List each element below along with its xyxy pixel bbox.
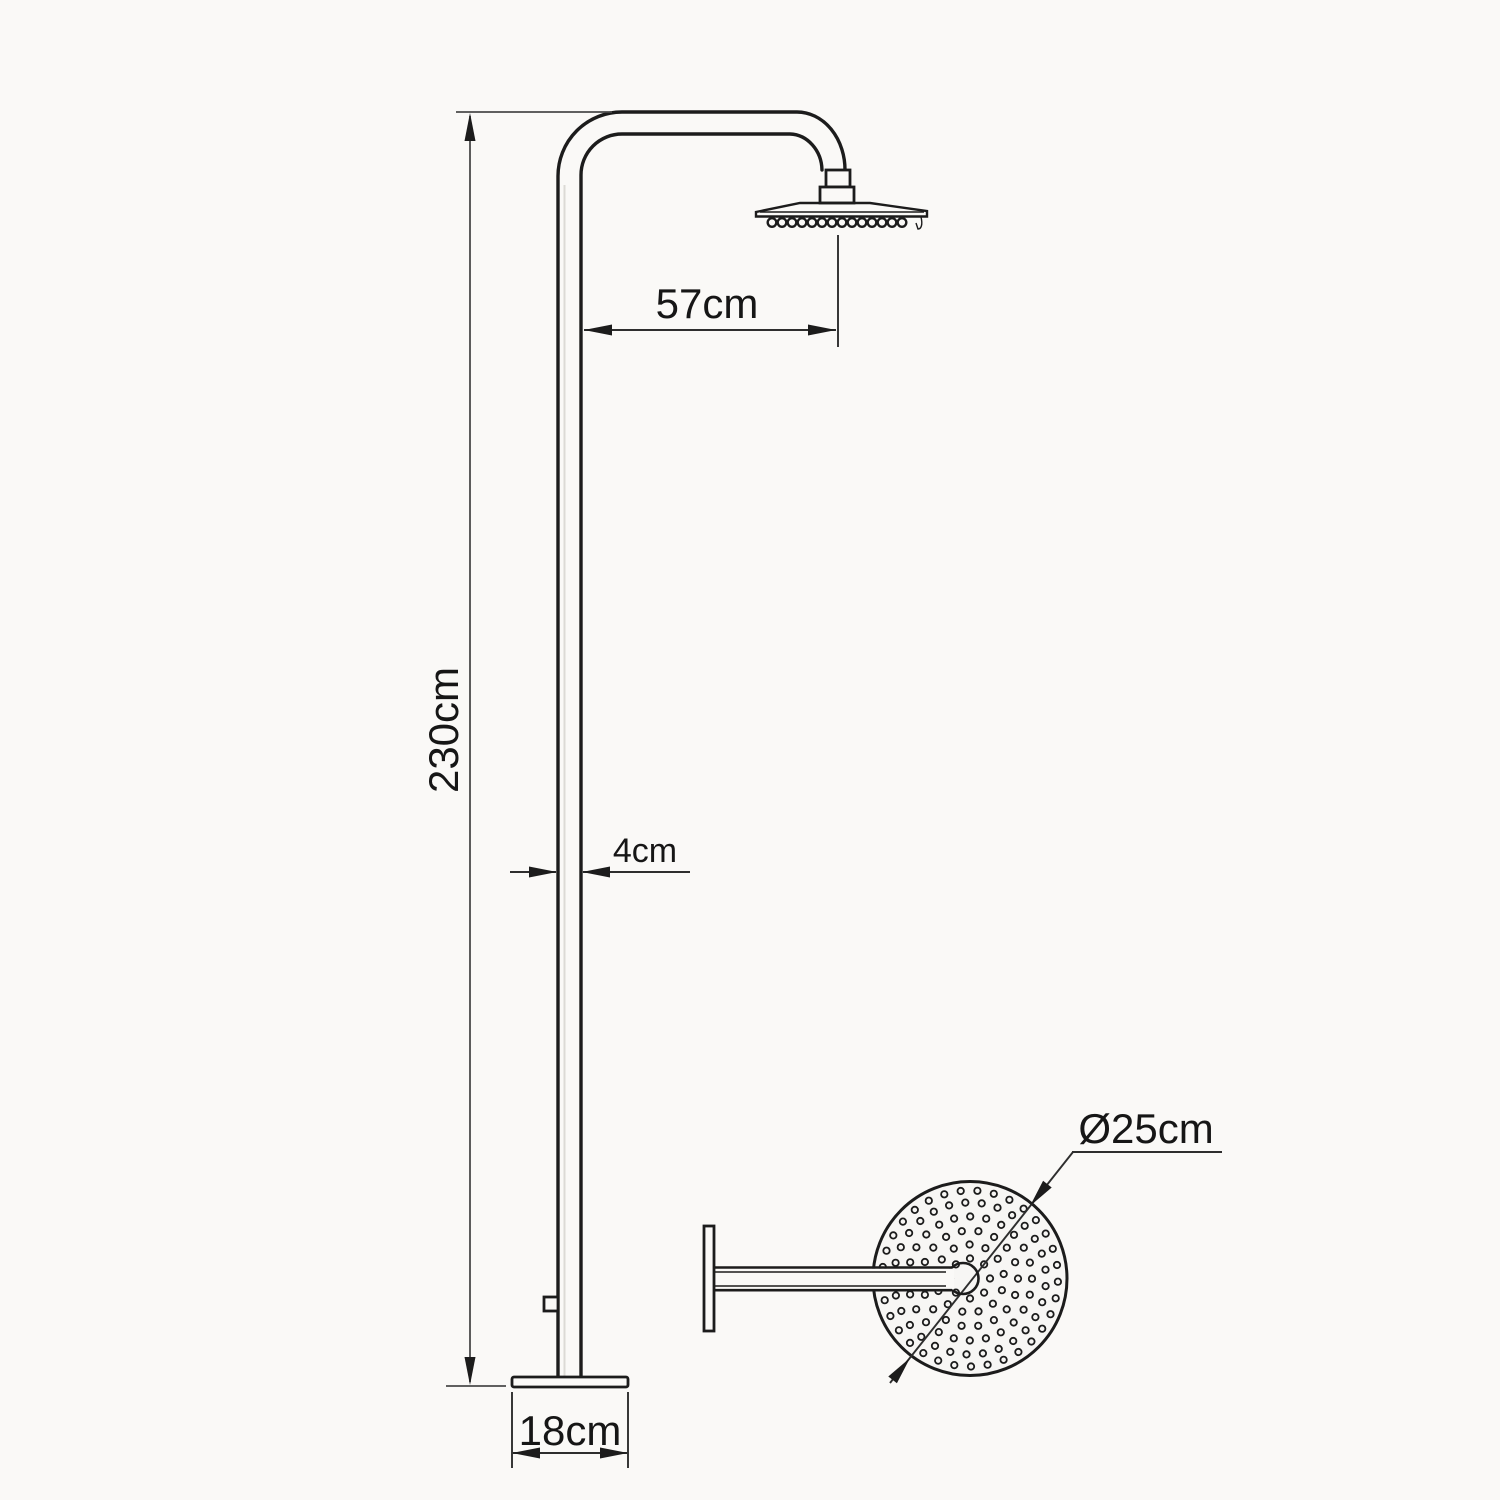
valve-stub [544, 1297, 558, 1311]
arrowhead-toward-right [529, 867, 557, 878]
arrowhead-left [584, 325, 612, 336]
shower-head-side [756, 203, 927, 217]
shower-head-nozzles [768, 218, 907, 227]
label-arm-reach: 57cm [656, 280, 759, 327]
wall-mount-plate [704, 1226, 714, 1331]
shower-arm-nut [826, 170, 850, 187]
label-head-diameter: Ø25cm [1078, 1105, 1213, 1152]
dimension-pipe-width: 4cm [510, 832, 690, 878]
dimension-column-height: 230cm [420, 112, 612, 1386]
shower-head-front-view: Ø25cm [704, 1105, 1222, 1383]
arrowhead-right [808, 325, 836, 336]
arrowhead-toward-left [582, 867, 610, 878]
dimension-base-width: 18cm [512, 1392, 628, 1468]
dimension-arm-reach: 57cm [584, 235, 838, 347]
label-column-height: 230cm [420, 667, 467, 793]
shower-head-flange [820, 187, 854, 203]
arrowhead-up [465, 113, 476, 141]
label-base-width: 18cm [519, 1407, 622, 1454]
arrowhead-down [465, 1357, 476, 1385]
base-plate [512, 1377, 628, 1387]
label-pipe-width: 4cm [613, 832, 677, 870]
shower-technical-drawing: 230cm 57cm 4cm 18cm Ø25cm [0, 0, 1500, 1500]
arrowhead-lower [888, 1358, 910, 1383]
head-drip-detail [916, 217, 922, 229]
